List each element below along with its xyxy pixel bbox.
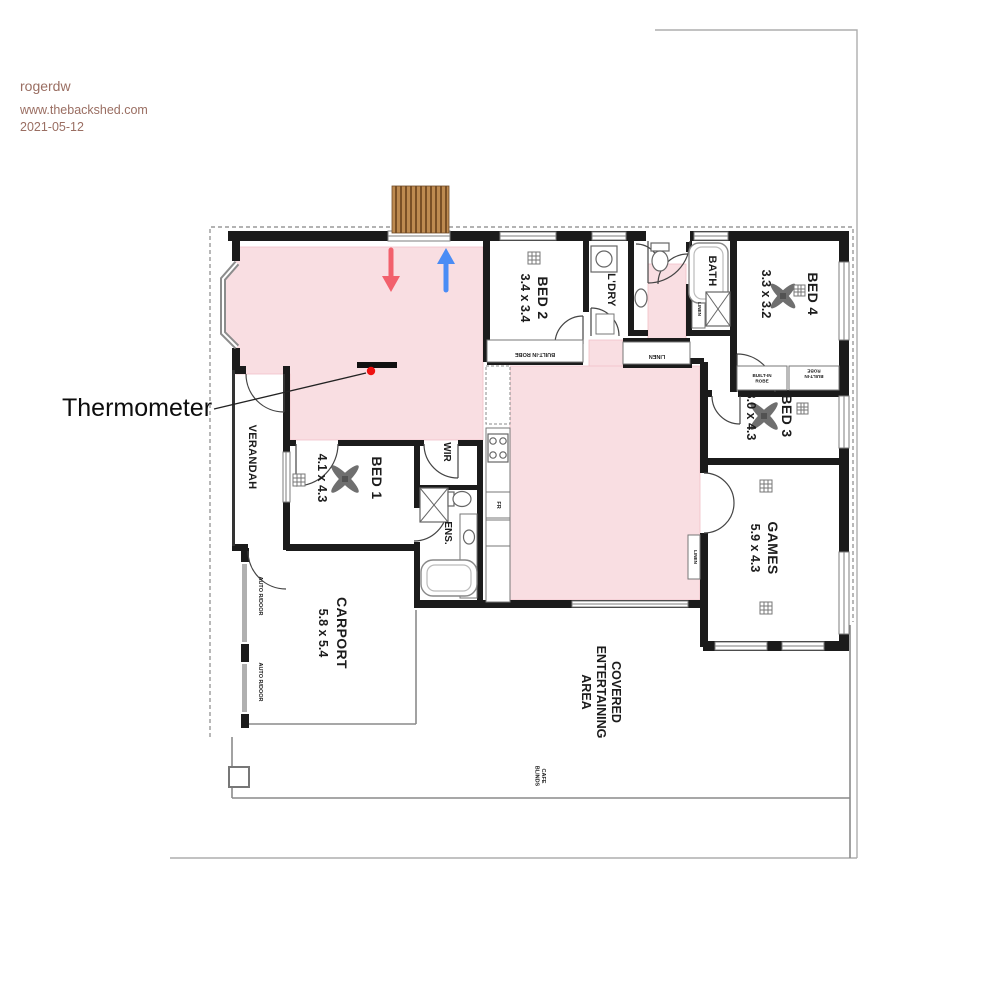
covered-line2: ENTERTAINING	[594, 646, 608, 739]
ens-label: ENS.	[442, 521, 453, 545]
forum-image-canvas: { "header": { "username": "rogerdw", "si…	[0, 0, 1000, 1000]
vent-icon	[760, 602, 772, 614]
laundry-appliance	[596, 314, 614, 334]
bed2-label: BED 2	[535, 276, 551, 319]
games-label: GAMES	[765, 521, 781, 574]
kitchen-fixtures	[486, 366, 510, 602]
bed3-robe-line2: ROBE	[807, 369, 820, 374]
bed2-robe-label: BUILT-IN ROBE	[515, 351, 556, 357]
bath-label: BATH	[706, 256, 718, 287]
toilet-icon	[651, 243, 669, 251]
bed3-dims: 3.0 x 4.3	[744, 392, 758, 441]
timber-slats	[392, 186, 449, 233]
verandah-label: VERANDAH	[246, 425, 258, 490]
thermometer-bar	[357, 362, 397, 368]
bed4-label: BED 4	[805, 272, 821, 315]
vent-icon	[528, 252, 540, 264]
vent-icon	[797, 403, 808, 414]
vent-icon	[760, 480, 772, 492]
bed4-robe-line1: BUILT-IN	[752, 373, 772, 378]
covered-area-label: COVEREDENTERTAININGAREA	[579, 646, 623, 739]
cafe-line1: CAFE	[540, 769, 546, 784]
entry-opening	[646, 229, 690, 242]
bed4-dims: 3.3 x 3.2	[759, 270, 773, 319]
auto-door-label-1: AUTO R/DOOR	[257, 576, 263, 615]
hall-linen-box	[623, 342, 690, 364]
bed1-label: BED 1	[369, 456, 385, 499]
thermometer-dot	[367, 367, 375, 375]
covered-line1: COVERED	[609, 661, 623, 723]
bed3-robe-line1: BUILT-IN	[804, 374, 824, 379]
pantry	[486, 366, 510, 424]
vent-icon	[293, 474, 305, 486]
floor-plan: BED 2 3.4 x 3.4 L'DRY BATH BED 4 3.3 x 3…	[0, 0, 1000, 1000]
bed3-label: BED 3	[779, 394, 795, 437]
bath-linen-label: LINEN	[697, 302, 702, 316]
family-linen-label: LINEN	[693, 550, 698, 564]
ldry-label: L'DRY	[605, 273, 617, 307]
carport-auto-doors	[242, 564, 247, 712]
appliance-box	[486, 520, 510, 546]
pergola-post	[229, 767, 249, 787]
basin-icon	[635, 289, 647, 307]
cafe-line2: BLINDS	[534, 766, 540, 787]
fridge-label: FR	[495, 501, 501, 508]
vent-icon	[794, 285, 805, 296]
games-dims: 5.9 x 4.3	[748, 524, 762, 573]
carport-dims: 5.8 x 5.4	[316, 609, 330, 658]
ens-shower-icon	[420, 488, 448, 522]
shower-icon	[706, 292, 730, 326]
cafe-blinds-label: CAFEBLINDS	[534, 766, 547, 787]
carport-label: CARPORT	[334, 597, 350, 669]
bed1-dims: 4.1 x 4.3	[315, 454, 329, 503]
auto-door-label-2: AUTO R/DOOR	[257, 662, 263, 701]
ceiling-fan-icon	[328, 462, 361, 495]
verandah-edge	[232, 370, 235, 546]
hall-linen-label: LINEN	[649, 353, 666, 359]
covered-line3: AREA	[579, 674, 593, 709]
bed4-robe-line2: ROBE	[755, 379, 768, 384]
wir-label: WIR	[441, 442, 452, 462]
bed2-robe-box	[487, 340, 583, 362]
bed2-dims: 3.4 x 3.4	[518, 274, 532, 323]
cooktop-icon	[488, 434, 508, 462]
